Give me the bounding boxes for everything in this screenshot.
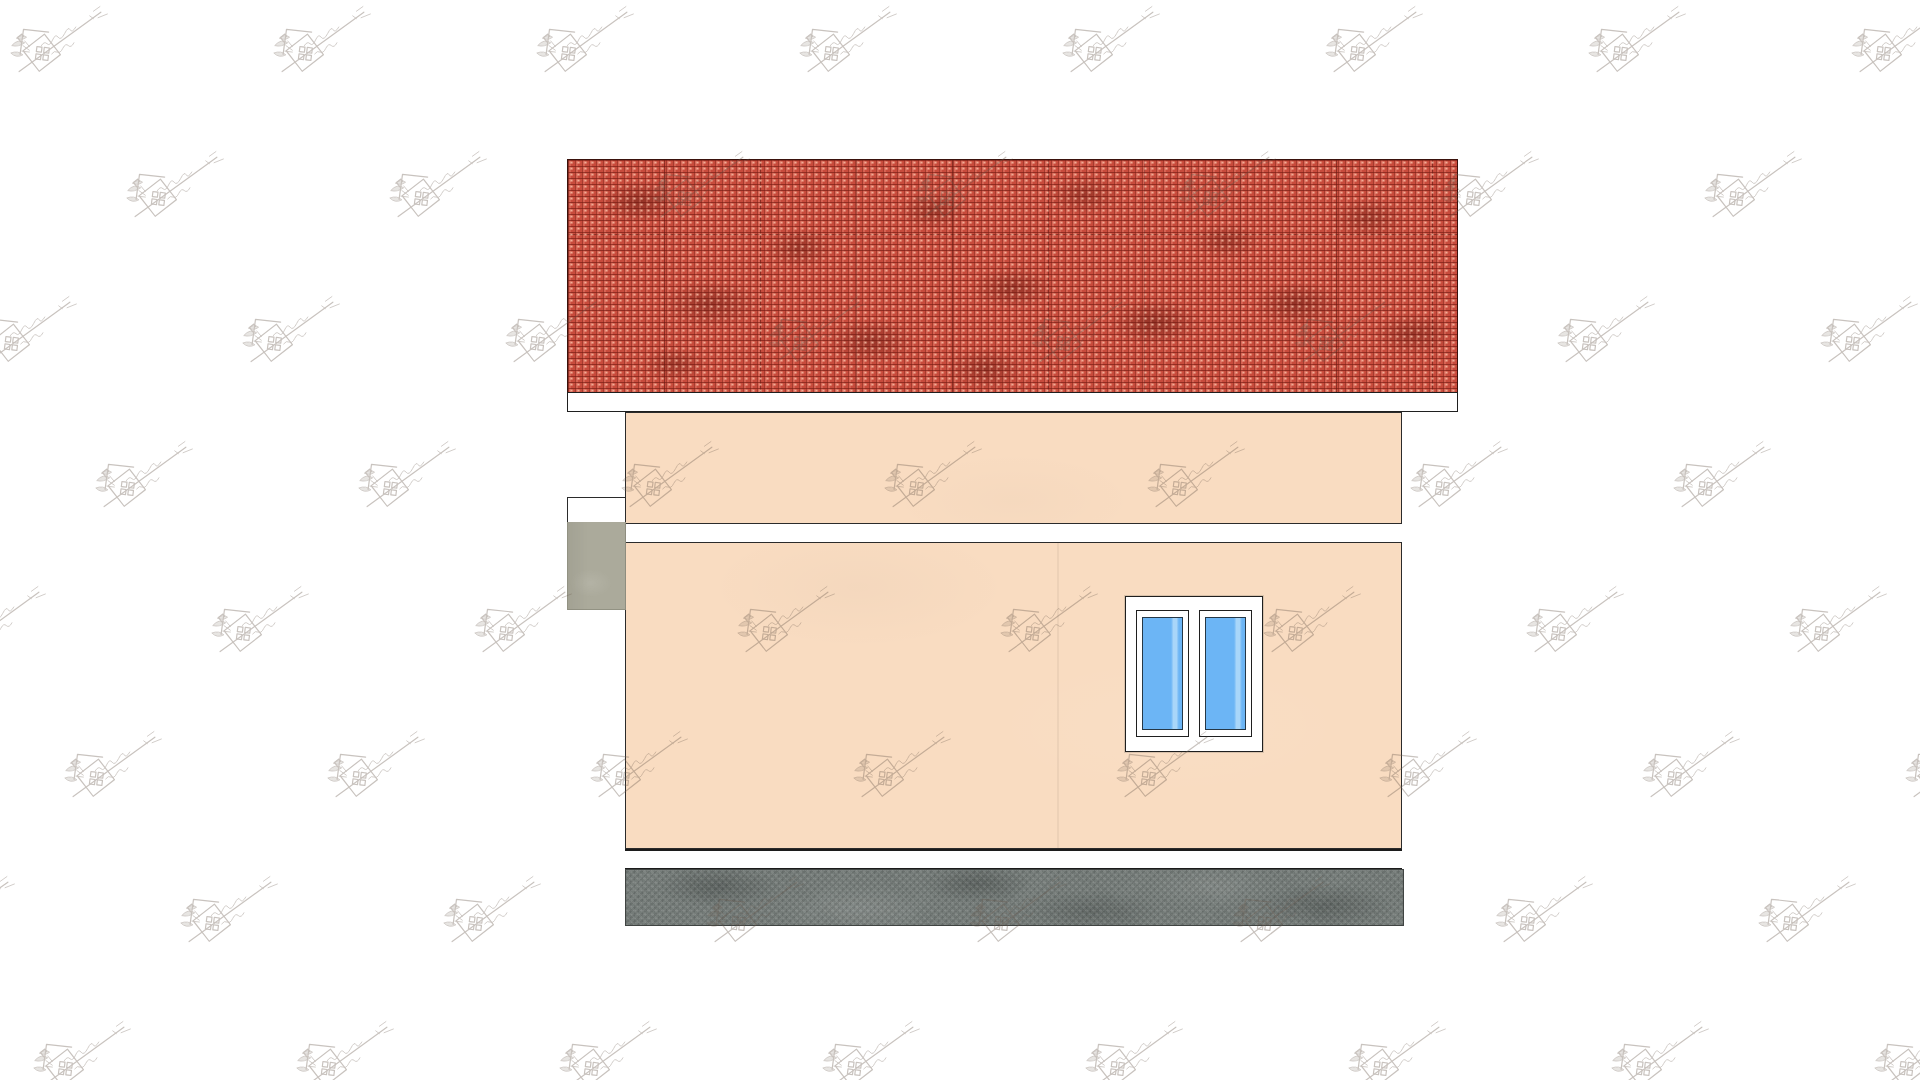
- side-pier-ledge: [567, 497, 626, 522]
- drawing-canvas: [0, 0, 1920, 1080]
- window-glass-right: [1205, 617, 1246, 730]
- wall-seam-line: [1057, 543, 1059, 849]
- house-elevation-drawing: [0, 0, 1920, 1080]
- plinth-strip: [625, 849, 1402, 869]
- inter-floor-band: [625, 523, 1402, 543]
- window-glass-left: [1142, 617, 1183, 730]
- window: [1125, 596, 1263, 752]
- roof-fascia-board: [567, 392, 1458, 412]
- plaster-wall: [625, 412, 1402, 849]
- side-pier-block: [567, 522, 626, 610]
- window-sash-right: [1199, 610, 1252, 737]
- foundation-basement: [625, 869, 1404, 926]
- window-sash-left: [1136, 610, 1189, 737]
- roof-tile-band: [567, 159, 1458, 393]
